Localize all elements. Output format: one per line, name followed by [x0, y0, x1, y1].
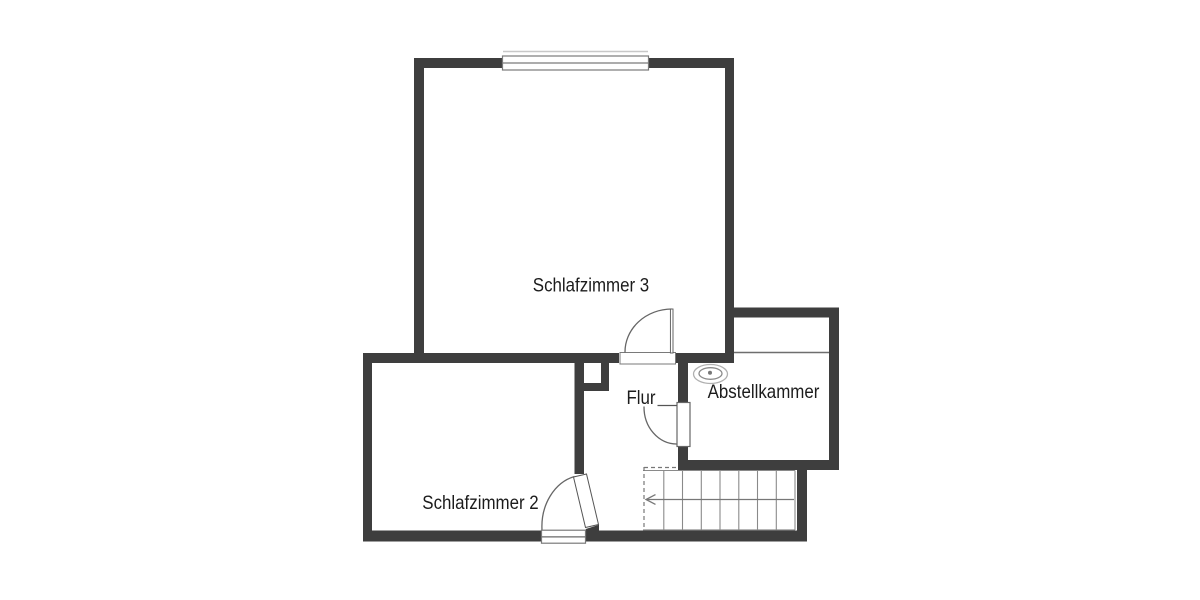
svg-text:Schlafzimmer 2: Schlafzimmer 2 — [422, 492, 538, 513]
svg-text:Schlafzimmer 3: Schlafzimmer 3 — [533, 275, 649, 296]
svg-text:Flur: Flur — [626, 387, 655, 408]
svg-text:Abstellkammer: Abstellkammer — [708, 381, 820, 402]
